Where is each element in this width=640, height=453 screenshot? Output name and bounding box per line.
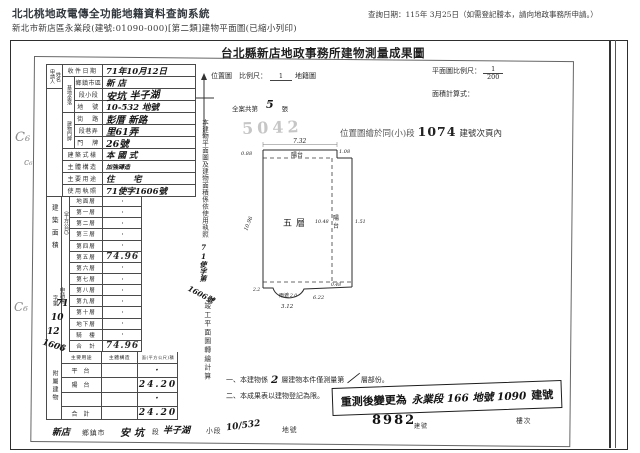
bottom-building-number-label: 建號 — [414, 421, 428, 430]
document-breadcrumb: 新北市新店區永業段(建號:01090-000)[第二類]建物平面圖(已縮小列印) — [12, 22, 297, 34]
application-number-block: 申請書 字第 71 10 12 1606 號 — [42, 287, 66, 351]
field-label: 主體構造 — [62, 161, 102, 173]
floor-area-value: · — [103, 263, 142, 273]
floor-label: 第六層 — [70, 263, 103, 273]
floor-area-value: · — [103, 307, 142, 317]
floor-label: 地下層 — [70, 319, 103, 329]
field-value: 本 國 式 — [102, 149, 195, 161]
note-1: 一、本建物係 2 層建物本件僅測量第 ／ 層部份。 — [226, 370, 389, 385]
floor-area-value: 74.96 — [103, 252, 142, 262]
field-value: 加強磚造 — [102, 161, 195, 173]
margin-mark: C₆ — [15, 130, 30, 145]
annex-use: 合 計 — [62, 407, 102, 420]
annex-structure — [102, 364, 138, 377]
bottom-section-value: 安坑 — [120, 424, 148, 439]
balcony-top-label: 陽台 — [291, 151, 303, 159]
annex-rows: 平 台 · 陽 台 24.20 · 合 計 — [62, 364, 178, 420]
annex-group-label: 附屬建物 — [46, 352, 62, 420]
note-2: 二、本成果表以建物登記為限。 — [226, 391, 324, 401]
canopy-label: 雨遮 — [279, 292, 289, 299]
query-date-note: 查詢日期：115年 3月25日（如需登記謄本，請向地政事務所申請。） — [368, 9, 598, 20]
page-edge-line — [609, 40, 611, 448]
bottom-township-label: 鄉鎮市 — [82, 427, 105, 437]
note-1-floor-hand: ／ — [347, 371, 358, 386]
table-row: 第五層 74.96 — [70, 252, 142, 263]
balcony-right-label: 陽 — [333, 214, 339, 222]
note-1-floors-hand: 2 — [271, 374, 278, 386]
floor-label: 第二層 — [70, 218, 103, 228]
applicant-name-cell: 申請人 姓名 — [46, 65, 62, 89]
location-map-scale: 位置圖 比例尺：1地籍圖 — [211, 71, 316, 85]
margin-mark: c₆ — [24, 158, 33, 168]
plan-scale-fraction: 1200 — [483, 66, 503, 81]
field-value: 26號 — [102, 137, 195, 149]
annex-header: 主體構造 — [102, 352, 138, 363]
sheet-count-handwritten: 5 — [266, 98, 274, 111]
table-row: 合 計 74.96 — [70, 341, 142, 352]
clause-strip-2: 竣工平面圖轉繪計算 — [203, 302, 210, 402]
table-row: 騎 樓 · — [70, 330, 142, 341]
field-label: 段巷弄 — [74, 125, 102, 137]
floor-label: 第一層 — [70, 207, 103, 217]
land-query-system-screen: 北北桃地政電傳全功能地籍資料查詢系統 新北市新店區永業段(建號:01090-00… — [0, 0, 640, 453]
stamp-handwritten: 永業段 166 地號 1090 — [411, 388, 526, 407]
annex-area: · — [138, 364, 178, 377]
field-value: 安坑 半子湖 — [102, 89, 195, 101]
floor-area-value: · — [103, 218, 142, 228]
document-title: 台北縣新店地政事務所建物測量成果圖 — [221, 45, 425, 61]
application-num: 71 — [56, 299, 69, 309]
floor-label: 五層 — [283, 218, 309, 229]
case-sheet-count: 全案共第5張 — [232, 101, 288, 114]
field-label: 主要用途 — [62, 173, 102, 185]
floor-label: 第八層 — [70, 285, 103, 295]
floor-area-value: · — [103, 319, 142, 329]
building-number-1074: 1074 — [418, 124, 457, 139]
application-num: 10 — [51, 313, 64, 323]
field-label: 鄉鎮市區 — [74, 77, 102, 89]
floor-label: 第四層 — [70, 241, 103, 251]
field-label: 段小段 — [74, 89, 102, 101]
floor-plan-drawing: 7.32 0.88 1.08 陽台 五層 陽 台 10.48 1.51 10.9… — [233, 136, 391, 318]
table-row: 第二層 · — [70, 218, 142, 229]
plan-scale-label: 平面圖比例尺： — [432, 66, 481, 76]
building-attributes-table: 申請人 姓名 收件日期 71年10月12日 基地坐落 鄉鎮市區 新 店 段小段 … — [46, 64, 196, 197]
location-scale-fraction: 1 — [270, 73, 292, 85]
bottom-land-number-label: 地號 — [282, 424, 298, 434]
area-formula-label: 面積計算式： — [432, 89, 474, 99]
annex-header-row: 主要用途 主體構造 面(平方公尺)積 — [62, 352, 178, 364]
field-value: 住 宅 — [102, 173, 195, 185]
annex-structure — [102, 407, 138, 420]
field-label: 地 號 — [74, 101, 102, 113]
table-row: 第八層 · — [70, 285, 142, 296]
group-label-base: 基地坐落 — [62, 77, 74, 113]
floor-area-value: · — [103, 196, 142, 206]
bottom-building-number-stamp: 8982 — [372, 413, 416, 428]
floor-label: 第三層 — [70, 229, 103, 239]
field-label: 街 路 — [74, 113, 102, 125]
clause-strip-1: 本建物平面圖及建物面積係依使用執照 — [201, 119, 208, 243]
field-label: 建築式樣 — [62, 149, 102, 161]
table-row: 第一層 · — [70, 207, 142, 218]
dim-top-left: 0.88 — [241, 151, 252, 157]
floor-label: 第五層 — [70, 252, 103, 262]
table-row: 第三層 · — [70, 229, 142, 240]
floor-label: 第七層 — [70, 274, 103, 284]
dim-left: 10.96 — [243, 215, 254, 232]
floor-area-value: · — [103, 330, 142, 340]
floor-label: 第十層 — [70, 307, 103, 317]
floor-rows: 地面層 · 第一層 · 第二層 · 第三層 · — [70, 196, 142, 352]
bottom-township-value: 新店 — [52, 425, 70, 438]
floor-label: 合 計 — [70, 341, 103, 351]
field-value: 71年10月12日 — [102, 65, 195, 77]
canopy-num: 2.0 — [289, 293, 297, 299]
field-label: 門 牌 — [74, 137, 102, 149]
annex-use — [62, 393, 102, 406]
annex-use: 平 台 — [62, 364, 102, 377]
table-row: 地下層 · — [70, 319, 142, 330]
margin-mark: C₆ — [14, 300, 28, 314]
annex-header: 主要用途 — [62, 352, 102, 363]
annex-area: 24.20 — [138, 378, 178, 391]
table-row: 第九層 · — [70, 296, 142, 307]
floor-area-value: · — [103, 207, 142, 217]
field-label: 收件日期 — [62, 65, 102, 77]
page-edge-line-2 — [615, 40, 616, 448]
bottom-subsection-value: 半子湖 — [163, 423, 190, 436]
cadastral-map-label: 地籍圖 — [295, 72, 316, 80]
table-row: 第四層 · — [70, 241, 142, 252]
plan-scale: 平面圖比例尺： 1200 — [432, 66, 503, 81]
table-row: 合 計 24.20 — [62, 407, 178, 420]
floor-area-value: · — [103, 274, 142, 284]
empty-cell — [46, 89, 62, 197]
bottom-section-label: 段 — [152, 426, 160, 436]
dim-bottom-left: 2.2 — [252, 287, 260, 293]
table-row: · — [62, 393, 178, 407]
annex-structure — [102, 393, 138, 406]
dim-right-outer: 1.51 — [355, 219, 366, 225]
table-row: 地面層 · — [70, 196, 142, 207]
dim-bottom-dash: 0.48 — [331, 282, 341, 288]
table-row: 第十層 · — [70, 307, 142, 318]
floor-area-value: · — [103, 296, 142, 306]
svg-text:台: 台 — [333, 222, 339, 230]
floor-area-value: · — [103, 285, 142, 295]
location-scale-label: 位置圖 比例尺： — [211, 72, 267, 80]
table-row: 陽 台 24.20 — [62, 378, 178, 392]
table-row: 第七層 · — [70, 274, 142, 285]
application-suffix: 號 — [60, 343, 66, 351]
annex-building-table: 附屬建物 主要用途 主體構造 面(平方公尺)積 平 台 · 陽 台 24.20 — [46, 352, 178, 420]
dim-bottom: 3.12 — [281, 304, 294, 310]
floor-label: 地面層 — [70, 196, 103, 206]
bottom-subsection-label: 小段 — [206, 425, 222, 435]
dim-top-right: 1.08 — [339, 149, 350, 155]
floor-area-value: 74.96 — [103, 341, 142, 351]
floor-area-value: · — [103, 241, 142, 251]
group-label-door: 建物門牌 — [62, 113, 74, 149]
dim-top: 7.32 — [293, 138, 307, 145]
application-num: 12 — [47, 327, 60, 337]
system-title: 北北桃地政電傳全功能地籍資料查詢系統 — [12, 6, 210, 21]
faint-number-stamp: 5042 — [242, 117, 303, 138]
license-number-handwritten: 71使字第 — [200, 243, 207, 285]
floor-label: 騎 樓 — [70, 330, 103, 340]
dim-bottom-mid: 6.22 — [313, 295, 324, 301]
annex-area: · — [138, 393, 178, 406]
bottom-floor-label: 樓次 — [516, 415, 532, 425]
table-row: 第六層 · — [70, 263, 142, 274]
floor-label: 第九層 — [70, 296, 103, 306]
annex-header: 面(平方公尺)積 — [138, 352, 178, 363]
dim-right-inner: 10.48 — [315, 219, 329, 225]
annex-area: 24.20 — [138, 407, 178, 420]
table-row: 平 台 · — [62, 364, 178, 378]
floor-area-value: · — [103, 229, 142, 239]
annex-structure — [102, 378, 138, 391]
annex-use: 陽 台 — [62, 378, 102, 391]
